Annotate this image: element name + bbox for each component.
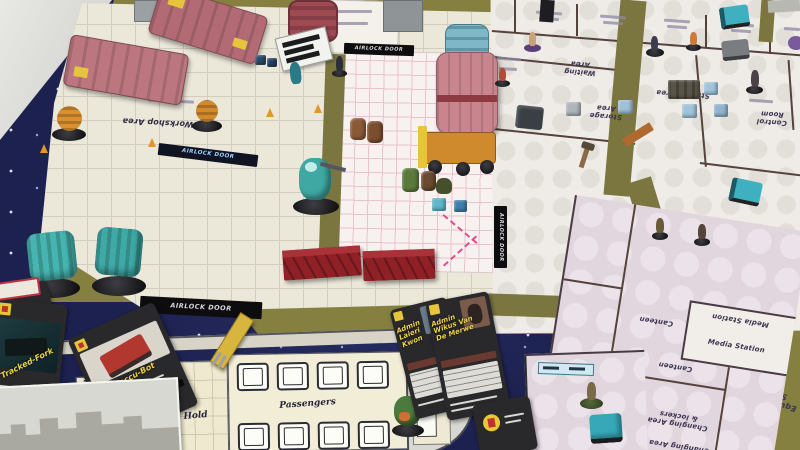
loader-wheel — [456, 162, 470, 176]
strip-segment — [543, 366, 559, 370]
figure-mini — [751, 70, 759, 87]
wall — [564, 278, 624, 289]
wall — [514, 0, 516, 32]
teal-crate — [432, 198, 446, 211]
card-icon — [393, 311, 404, 322]
gray-slab — [383, 0, 423, 32]
loader-mast — [418, 126, 427, 168]
room-label-changing-area: Changing Area — [639, 436, 719, 450]
mini-base — [694, 238, 710, 246]
barrel — [367, 121, 383, 143]
blue-crate — [454, 200, 467, 212]
alien-orange-patch — [399, 412, 410, 421]
cone-marker — [266, 108, 274, 117]
table-corner — [768, 0, 800, 13]
alien-mini — [436, 178, 452, 194]
tank-band — [437, 95, 497, 102]
mini-base — [495, 80, 510, 87]
passenger-seat — [357, 361, 389, 390]
figure-mini — [651, 36, 658, 50]
black-slab-mini — [539, 0, 555, 22]
icon-glyph — [487, 418, 495, 428]
blue-crate — [618, 100, 633, 114]
passenger-seat — [238, 423, 270, 450]
mini-base — [332, 70, 347, 77]
girder-top — [362, 249, 434, 259]
orange-loader — [418, 126, 500, 176]
dark-crate — [668, 80, 700, 99]
red-girder-2 — [362, 249, 435, 281]
mini-base — [293, 198, 339, 215]
mini-base — [652, 232, 668, 240]
figure-mini — [336, 56, 343, 71]
card-bottom-right — [472, 395, 538, 450]
wall — [576, 4, 578, 36]
stat-bar — [504, 413, 524, 418]
purple-disc-mini — [788, 36, 800, 50]
card-icon — [0, 302, 11, 315]
orange-robot-mini — [196, 100, 218, 122]
gray-vehicle-mini — [721, 39, 750, 62]
navy-crate — [267, 58, 277, 67]
figure-mini — [698, 224, 706, 239]
container-marking — [232, 37, 248, 50]
barrel-green — [402, 168, 419, 192]
cone-marker — [40, 144, 48, 153]
room-label-waiting-area: Waiting Area — [555, 58, 604, 77]
room-label-control-room: Control Room — [747, 108, 796, 127]
passenger-seat — [237, 363, 269, 392]
figure-mini — [690, 32, 697, 45]
mini-base — [686, 44, 701, 51]
cone-marker — [314, 104, 322, 113]
teal-vehicle-mini — [589, 413, 623, 444]
dark-machine-mini — [515, 105, 544, 131]
blue-crate — [714, 104, 728, 117]
label-smudge — [334, 22, 368, 25]
skyline-card — [0, 377, 182, 450]
teal-forklift-mini — [719, 4, 751, 30]
cone-marker — [148, 138, 156, 147]
mini-base — [746, 86, 763, 94]
gray-crate — [566, 102, 581, 116]
figure-mini — [587, 382, 596, 400]
teal-bot-mini — [94, 226, 144, 278]
card-icon-circle — [482, 413, 502, 433]
icon-glyph — [2, 306, 9, 313]
red-girder-1 — [282, 245, 362, 280]
skyline-silhouette — [0, 407, 180, 450]
teal-bot-mini — [26, 230, 79, 283]
passenger-seat — [358, 421, 390, 450]
barrel — [350, 118, 366, 140]
salmon-tank — [436, 52, 498, 134]
blue-crate — [704, 82, 718, 95]
passenger-seat — [318, 421, 350, 450]
room-label-canteen-flipped-1: Canteen — [628, 313, 685, 330]
room-label-changing-lockers: Changing Area & lockers — [644, 407, 712, 433]
tabletop-photo: Waiting Area Storage Area Staging Area C… — [0, 0, 800, 450]
icon-glyph — [78, 342, 85, 349]
barrel — [421, 171, 436, 191]
strip-segment — [569, 367, 585, 371]
container-marking — [167, 0, 185, 9]
ship-label-hold: Hold — [183, 411, 208, 422]
ship-label-passengers: Passengers — [279, 398, 336, 411]
med-chem-strip — [538, 362, 594, 376]
figure-mini — [656, 218, 664, 233]
container-marking — [73, 66, 89, 78]
navy-crate — [255, 55, 266, 65]
stat-bar — [505, 419, 521, 424]
mech-canopy — [305, 162, 317, 172]
airlock-strip-4: AIRLOCK DOOR — [494, 206, 507, 268]
blue-crate — [682, 104, 697, 118]
orange-robot-mini — [57, 106, 82, 131]
card-icon — [429, 304, 441, 316]
wall — [709, 361, 731, 450]
loader-wheel — [480, 160, 494, 174]
passenger-seat — [277, 362, 309, 391]
figure-mini — [529, 32, 536, 46]
figure-mini — [499, 68, 506, 81]
ship-passenger-room: Passengers — [227, 351, 409, 450]
mini-base — [92, 276, 146, 296]
wall — [705, 15, 707, 47]
passenger-seat — [317, 361, 349, 390]
passenger-seat — [278, 422, 310, 450]
